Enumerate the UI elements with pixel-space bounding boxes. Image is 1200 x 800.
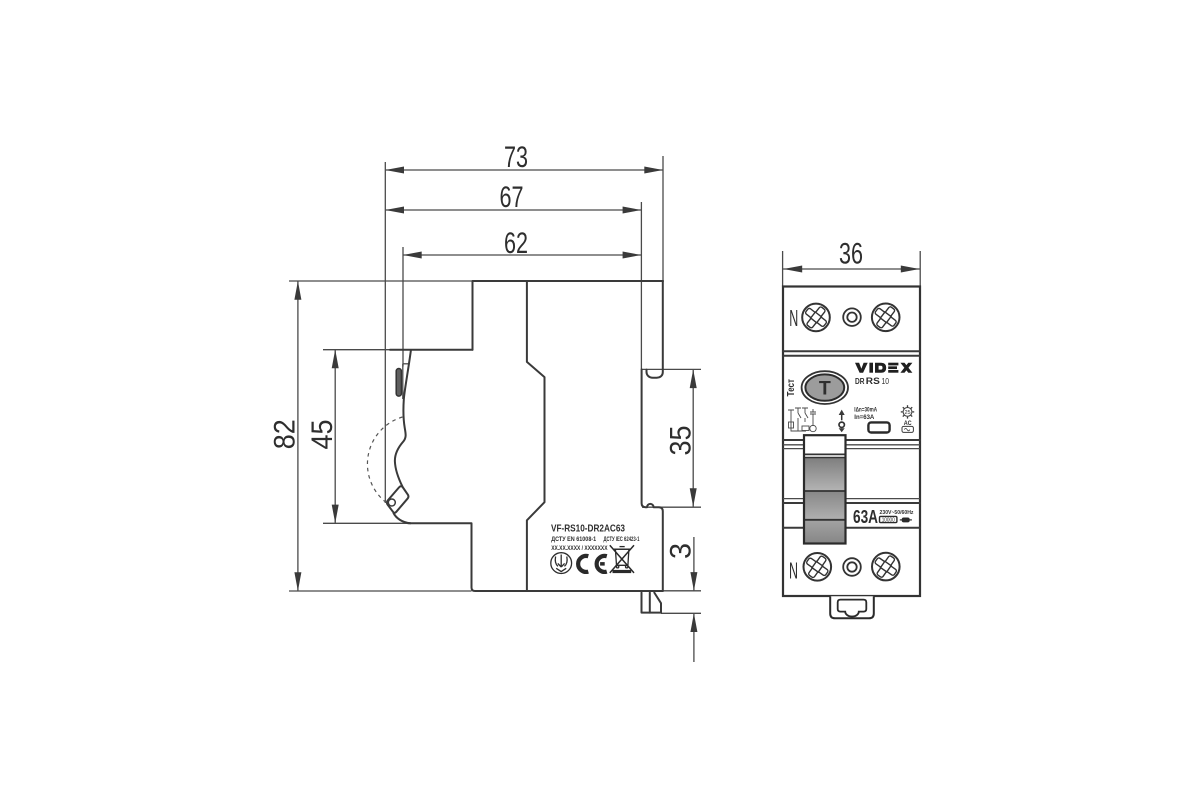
svg-text:N: N	[789, 305, 798, 331]
svg-text:62: 62	[504, 227, 528, 260]
svg-text:AC: AC	[904, 420, 912, 427]
svg-text:63A: 63A	[853, 506, 878, 527]
svg-text:67: 67	[500, 181, 524, 214]
svg-text:36: 36	[839, 238, 863, 271]
svg-text:45: 45	[306, 420, 339, 450]
svg-text:Тест: Тест	[785, 379, 797, 397]
svg-text:VF-RS10-DR2AC63: VF-RS10-DR2AC63	[551, 524, 625, 535]
svg-text:10000: 10000	[882, 518, 895, 524]
svg-text:ДСТУ IEC 62423-1: ДСТУ IEC 62423-1	[604, 536, 640, 543]
svg-text:73: 73	[504, 141, 528, 174]
svg-text:IΔn=30mA: IΔn=30mA	[854, 406, 877, 413]
svg-text:In=63A: In=63A	[854, 414, 874, 421]
svg-text:RS: RS	[866, 376, 880, 387]
svg-text:82: 82	[269, 419, 302, 449]
svg-text:T: T	[819, 378, 831, 400]
svg-text:ДСТУ EN 61008-1: ДСТУ EN 61008-1	[551, 536, 596, 543]
svg-text:DR: DR	[855, 377, 865, 386]
svg-text:230V~50/60Hz: 230V~50/60Hz	[880, 510, 914, 516]
svg-text:25: 25	[904, 410, 910, 416]
svg-text:35: 35	[665, 426, 698, 456]
svg-text:N: N	[789, 558, 798, 584]
svg-text:10: 10	[882, 377, 890, 386]
svg-text:XX.XX.XXXX / XXXXXXX: XX.XX.XXXX / XXXXXXX	[551, 545, 608, 552]
svg-text:3: 3	[665, 543, 698, 559]
